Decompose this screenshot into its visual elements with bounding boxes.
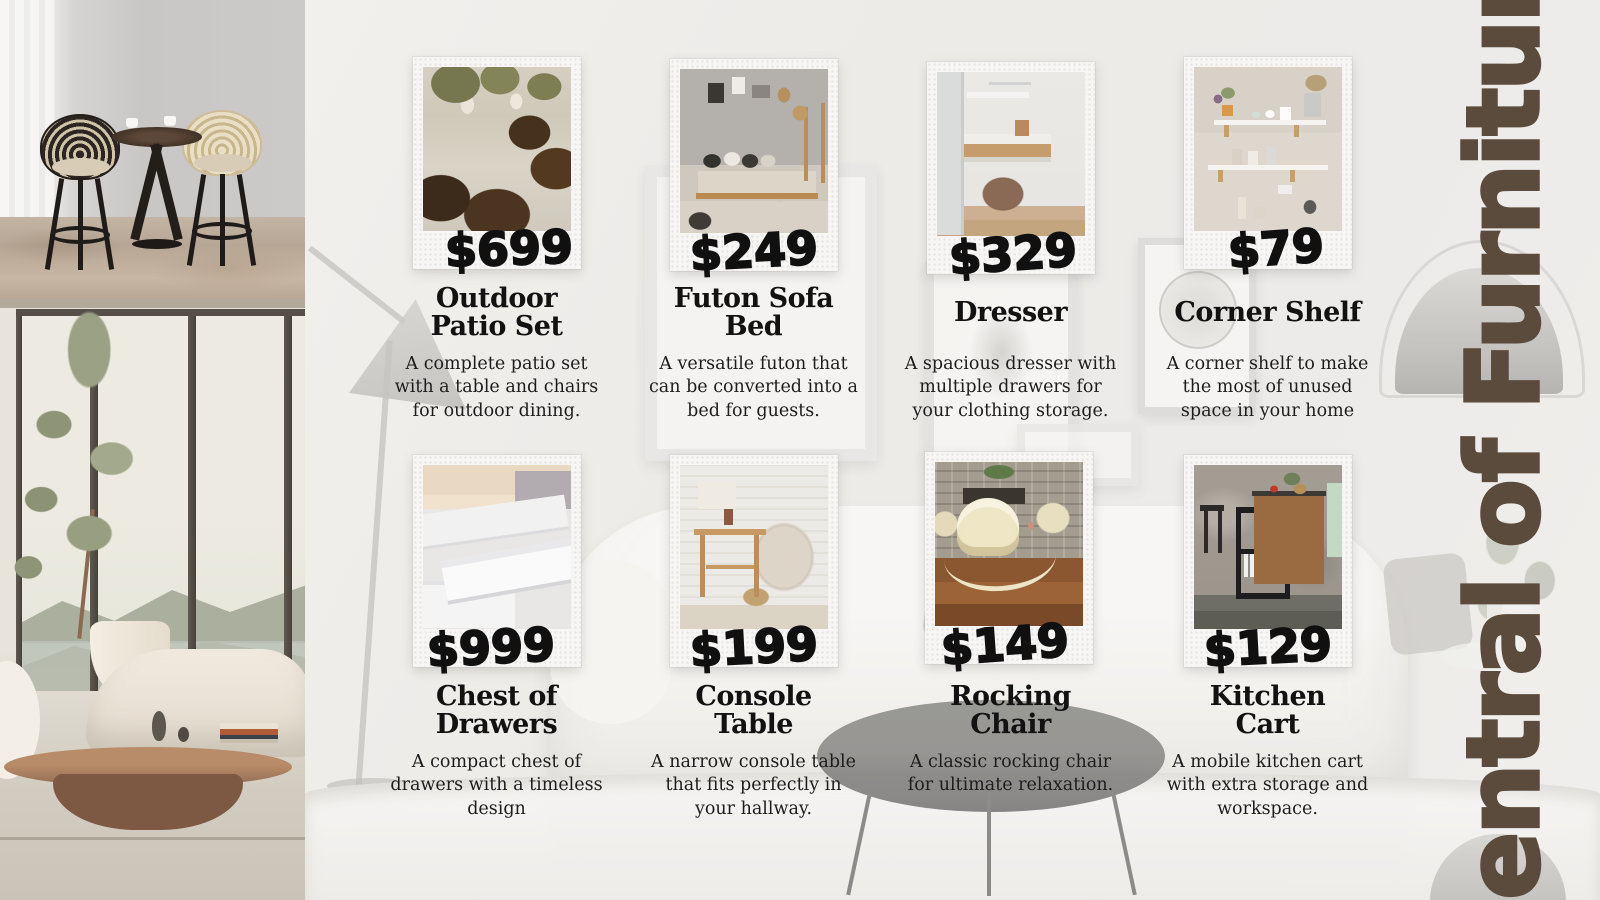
kitchen-cart-photo	[1194, 465, 1342, 629]
product-price: $149	[919, 615, 1090, 673]
outdoor-patio-set-photo	[423, 67, 571, 231]
product-card: $149 RockingChair A classic rocking chai…	[882, 455, 1139, 855]
product-description: A narrow console table that fits perfect…	[647, 751, 861, 821]
product-description: A corner shelf to make the most of unuse…	[1161, 353, 1375, 423]
product-card: $329 Dresser A spacious dresser with mul…	[882, 57, 1139, 455]
product-price: $999	[405, 620, 575, 675]
product-card: $199 ConsoleTable A narrow console table…	[625, 455, 882, 855]
product-card: $129 KitchenCart A mobile kitchen cart w…	[1139, 455, 1396, 855]
product-description: A versatile futon that can be converted …	[647, 353, 861, 423]
polaroid-frame: $999	[413, 455, 581, 667]
product-price: $199	[668, 620, 838, 675]
product-description: A mobile kitchen cart with extra storage…	[1161, 751, 1375, 821]
book-stack	[220, 723, 278, 743]
corner-shelf-photo	[1194, 67, 1342, 231]
product-price: $699	[424, 223, 594, 275]
photo-sidebar	[0, 0, 305, 900]
product-price: $249	[668, 224, 838, 279]
bistro-table	[112, 127, 202, 262]
furniture-catalog-flyer: $699 OutdoorPatio Set A complete patio s…	[0, 0, 1600, 900]
product-price: $329	[927, 225, 1098, 283]
product-title: Corner Shelf	[1139, 283, 1396, 343]
bistro-bar-set-photo	[0, 0, 305, 299]
product-title: OutdoorPatio Set	[368, 283, 625, 343]
polaroid-frame: $249	[670, 59, 838, 271]
polaroid-frame: $79	[1184, 57, 1352, 269]
tall-plant	[6, 309, 166, 649]
product-title: Dresser	[882, 283, 1139, 343]
product-title: RockingChair	[882, 681, 1139, 741]
product-description: A classic rocking chair for ultimate rel…	[904, 751, 1118, 798]
polaroid-frame: $129	[1184, 455, 1352, 667]
product-title: Futon SofaBed	[625, 283, 882, 343]
product-grid: $699 OutdoorPatio Set A complete patio s…	[368, 0, 1396, 855]
product-card: $249 Futon SofaBed A versatile futon tha…	[625, 57, 882, 455]
polaroid-frame: $699	[413, 57, 581, 269]
oval-coffee-table	[4, 747, 292, 839]
product-description: A spacious dresser with multiple drawers…	[904, 353, 1118, 423]
coffee-cup	[164, 116, 176, 124]
brand-vertical-text: Central of Furniture	[1440, 0, 1570, 900]
product-title: Chest ofDrawers	[368, 681, 625, 741]
product-card: $699 OutdoorPatio Set A complete patio s…	[368, 57, 625, 455]
product-title: KitchenCart	[1139, 681, 1396, 741]
product-title: ConsoleTable	[625, 681, 882, 741]
product-description: A compact chest of drawers with a timele…	[390, 751, 604, 821]
catalog-board: $699 OutdoorPatio Set A complete patio s…	[305, 0, 1600, 900]
polaroid-frame: $329	[927, 62, 1095, 274]
product-price: $129	[1182, 620, 1352, 675]
coffee-cup	[126, 118, 138, 126]
dresser-photo	[937, 72, 1085, 236]
futon-sofa-bed-photo	[680, 69, 828, 233]
polaroid-frame: $199	[670, 455, 838, 667]
product-card: $79 Corner Shelf A corner shelf to make …	[1139, 57, 1396, 455]
polaroid-frame: $149	[925, 452, 1093, 664]
chest-of-drawers-photo	[423, 465, 571, 629]
rocking-chair-photo	[935, 462, 1083, 626]
console-table-photo	[680, 465, 828, 629]
product-description: A complete patio set with a table and ch…	[390, 353, 604, 423]
living-room-mountain-view-photo	[0, 299, 305, 900]
product-card: $999 Chest ofDrawers A compact chest of …	[368, 455, 625, 855]
